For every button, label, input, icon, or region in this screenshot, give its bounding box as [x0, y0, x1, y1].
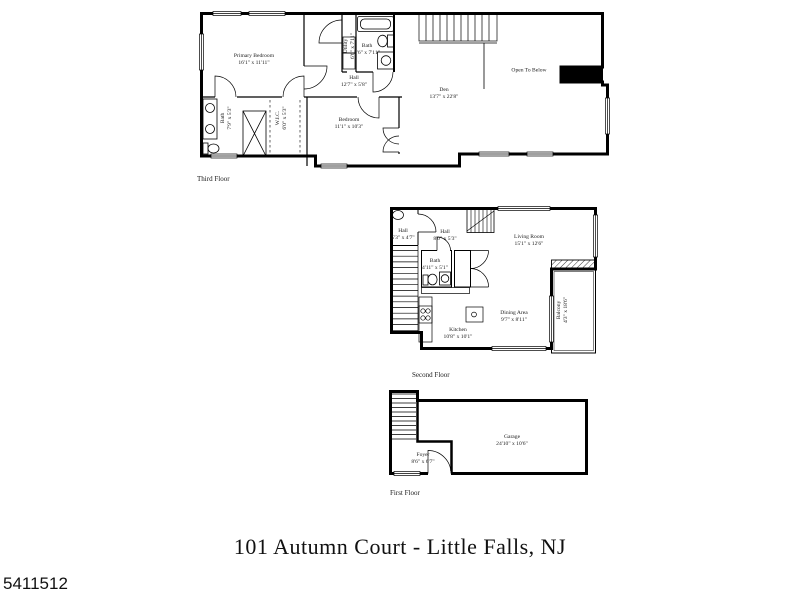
- bathtub: [358, 17, 394, 32]
- stairs: [419, 14, 497, 43]
- toilet-2: [203, 143, 219, 154]
- entry-door: [428, 451, 451, 477]
- kitchen-counters: [419, 288, 483, 343]
- toilet-bowl: [428, 274, 437, 285]
- second-floor-plan-drawing: [388, 202, 616, 372]
- third-floor-plan: Primary Bedroom 16'1" x 11'11" Utility 6…: [197, 10, 611, 180]
- chimney-block: [560, 66, 603, 83]
- floor-caption-first: First Floor: [390, 489, 420, 497]
- hatched-block: [552, 260, 596, 269]
- pantry-closet: [455, 251, 489, 288]
- toilet: [378, 35, 394, 47]
- stairs: [392, 394, 416, 439]
- closet-rods: [270, 100, 300, 154]
- bath-room: [422, 237, 452, 287]
- sink: [378, 52, 395, 69]
- foyer-walls: [418, 401, 452, 474]
- interior-walls: [201, 14, 402, 166]
- double-vanity: [203, 99, 217, 139]
- first-floor-plan-drawing: [386, 389, 600, 485]
- sink-bowl: [441, 275, 449, 283]
- outer-walls: [392, 209, 596, 349]
- shower: [243, 111, 266, 156]
- powder-room: [392, 209, 437, 246]
- outer-walls: [391, 392, 587, 474]
- listing-title: 101 Autumn Court - Little Falls, NJ: [0, 534, 800, 560]
- utility-shelves: [343, 37, 355, 69]
- floor-caption-third: Third Floor: [197, 175, 230, 183]
- stairs-up: [467, 209, 494, 233]
- photo-id: 5411512: [3, 574, 68, 594]
- stairs-left: [392, 246, 419, 332]
- floor-caption-second: Second Floor: [412, 371, 450, 379]
- stove: [419, 306, 432, 323]
- windows: [394, 472, 420, 476]
- second-floor-plan: Hall 5'3" x 4'7" Hall 8'0" x 5'3" Living…: [388, 202, 616, 372]
- toilet: [423, 275, 428, 285]
- outer-walls: [202, 14, 608, 167]
- balcony-rail: [552, 269, 596, 353]
- third-floor-plan-drawing: [197, 10, 611, 180]
- windows: [492, 207, 598, 351]
- corner-sink: [393, 211, 404, 220]
- island: [466, 307, 483, 322]
- windows: [200, 12, 610, 169]
- floorplan-page: Primary Bedroom 16'1" x 11'11" Utility 6…: [0, 0, 800, 600]
- first-floor-plan: Foyer 8'6" x 6'7" Garage 24'10" x 10'6": [386, 389, 600, 485]
